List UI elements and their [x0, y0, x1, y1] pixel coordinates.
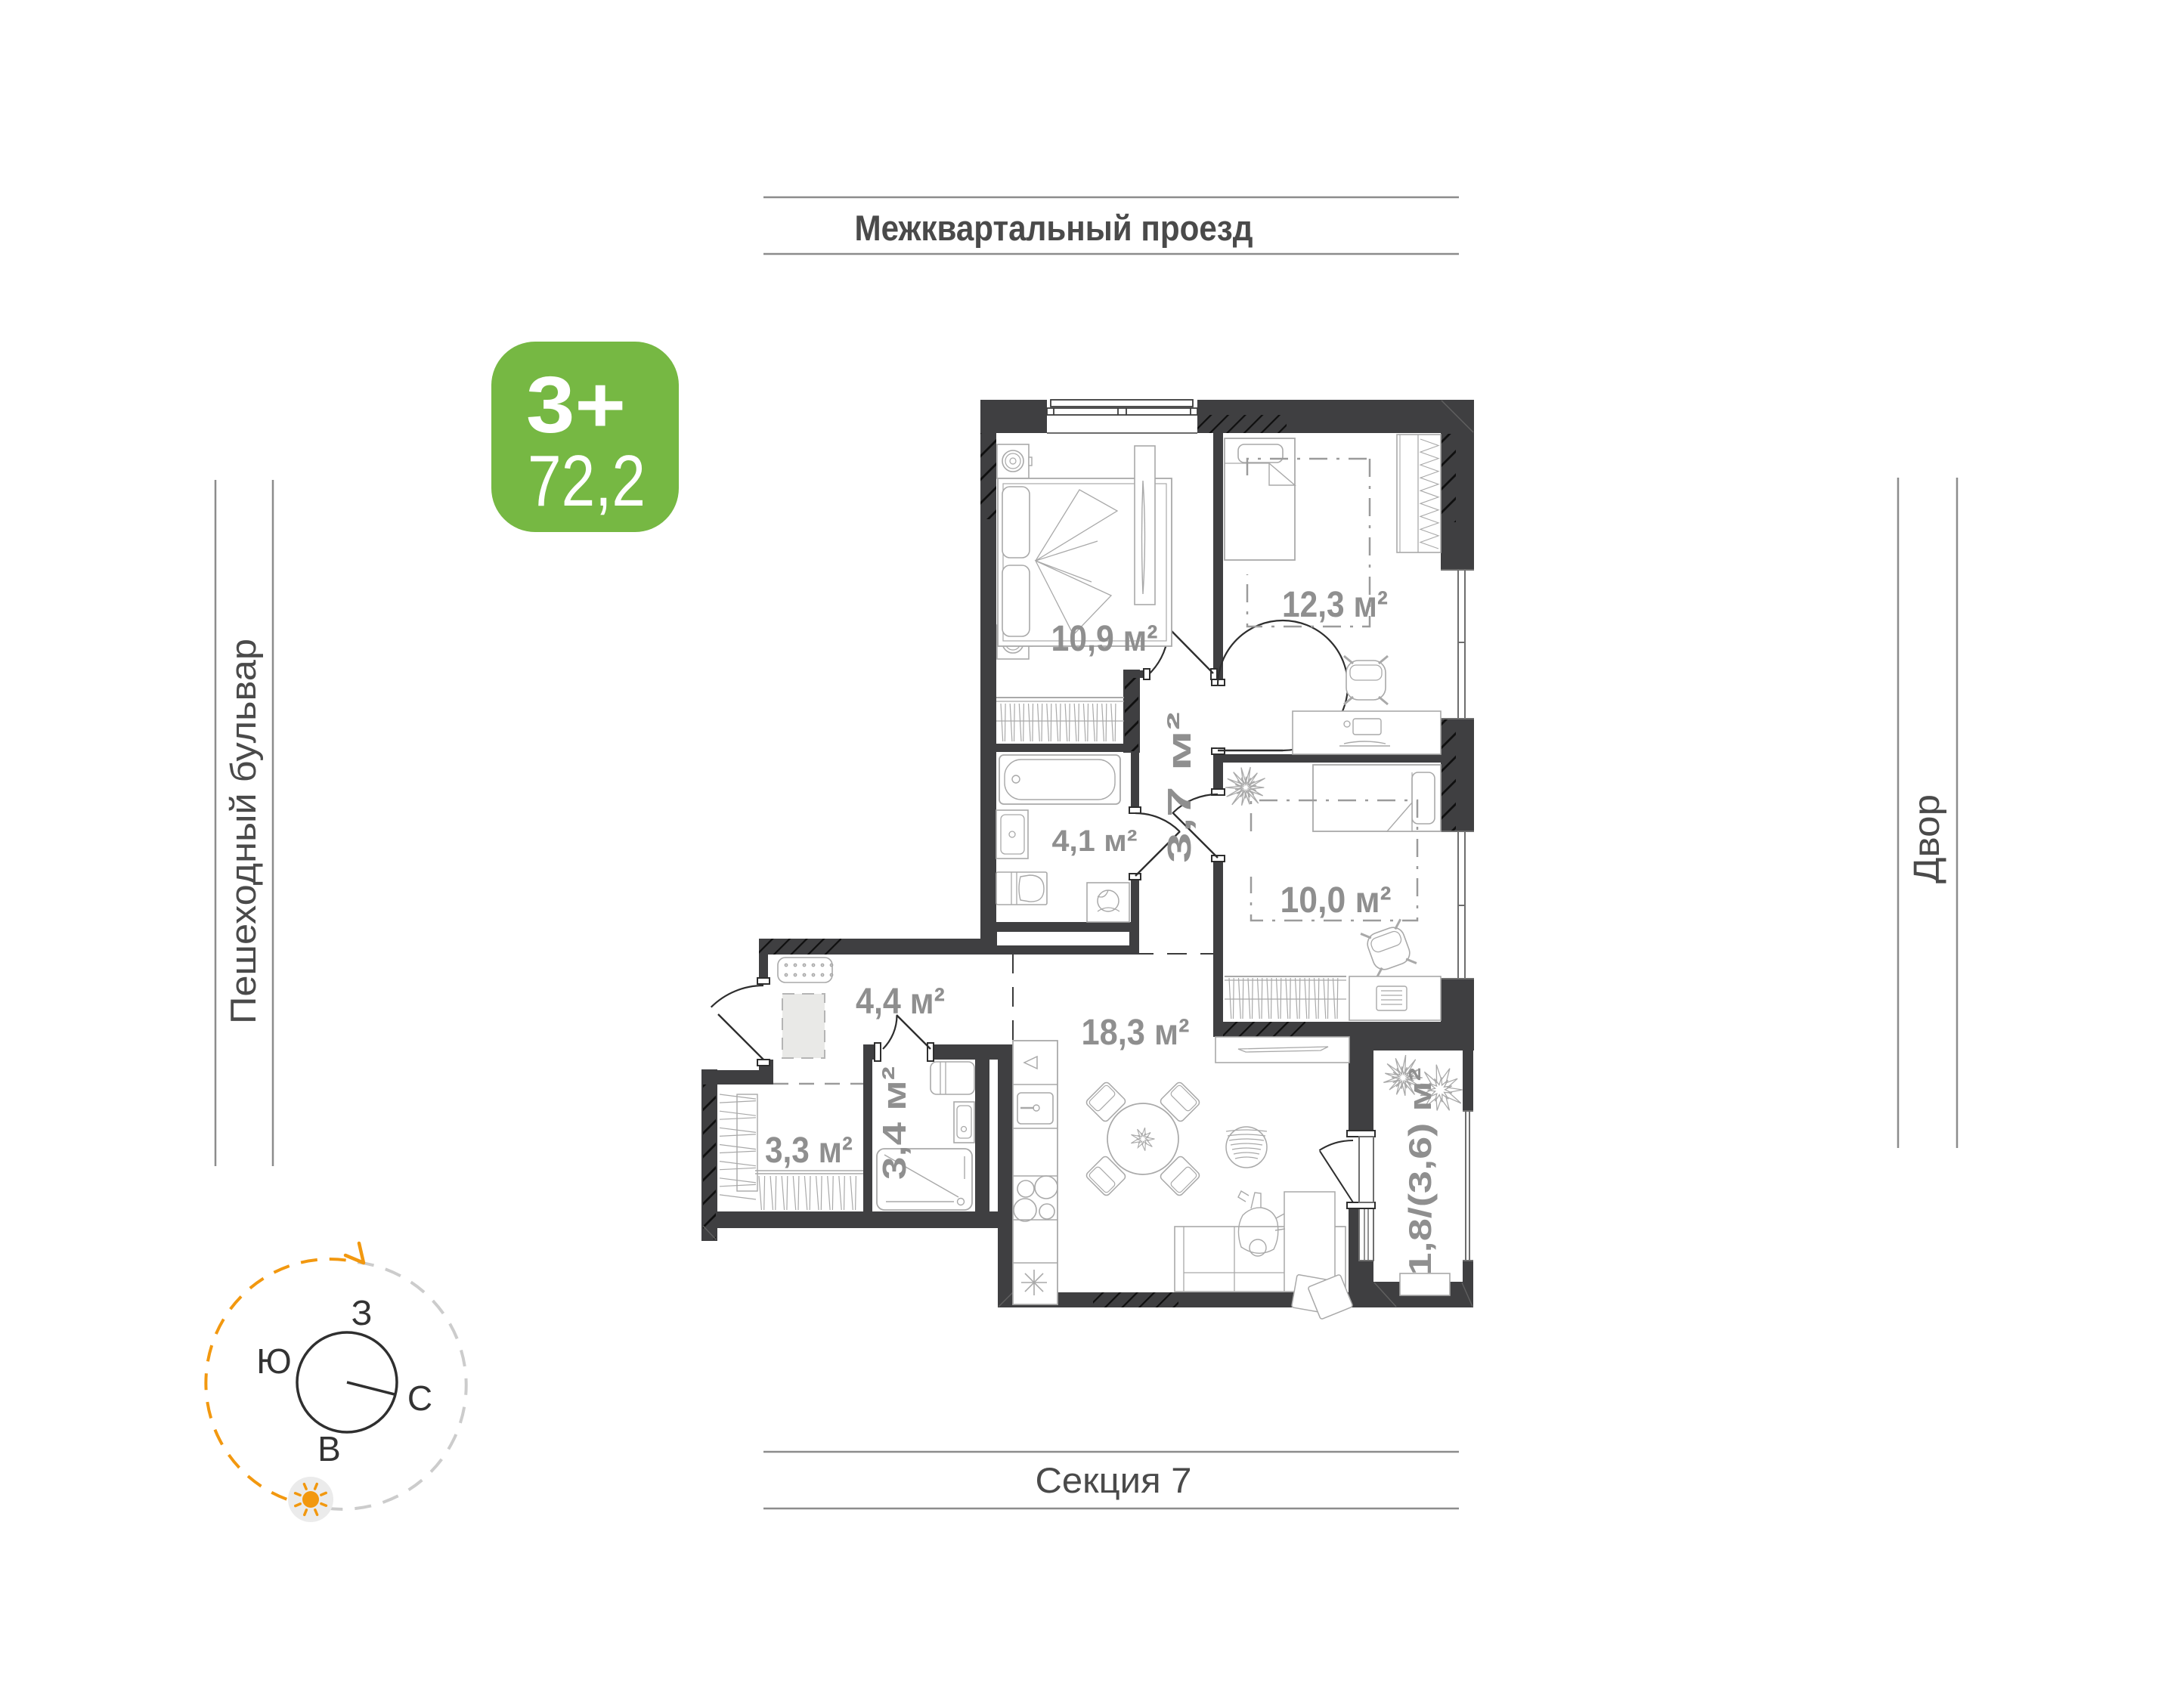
- svg-text:18,3 м²: 18,3 м²: [1082, 1013, 1190, 1053]
- svg-text:3,4 м²: 3,4 м²: [876, 1066, 913, 1180]
- svg-text:Секция 7: Секция 7: [1036, 1460, 1192, 1500]
- svg-text:3+: 3+: [526, 360, 626, 450]
- svg-text:10,9 м²: 10,9 м²: [1051, 619, 1158, 659]
- svg-text:1,8/(3,6) м²: 1,8/(3,6) м²: [1402, 1067, 1438, 1275]
- svg-text:4,1 м²: 4,1 м²: [1052, 825, 1138, 858]
- svg-text:В: В: [317, 1429, 342, 1468]
- svg-text:10,0 м²: 10,0 м²: [1280, 880, 1392, 921]
- svg-text:Пешеходный бульвар: Пешеходный бульвар: [223, 639, 263, 1024]
- svg-text:3,3 м²: 3,3 м²: [765, 1131, 853, 1171]
- svg-text:Межквартальный проезд: Межквартальный проезд: [855, 208, 1253, 248]
- svg-text:Ю: Ю: [256, 1341, 292, 1381]
- svg-text:Двор: Двор: [1907, 794, 1947, 883]
- svg-text:3,7 м²: 3,7 м²: [1161, 712, 1198, 863]
- svg-text:С: С: [407, 1378, 433, 1418]
- svg-text:12,3 м²: 12,3 м²: [1282, 585, 1388, 625]
- svg-text:4,4 м²: 4,4 м²: [856, 982, 945, 1022]
- svg-text:72,2: 72,2: [528, 441, 646, 521]
- svg-text:З: З: [351, 1293, 373, 1332]
